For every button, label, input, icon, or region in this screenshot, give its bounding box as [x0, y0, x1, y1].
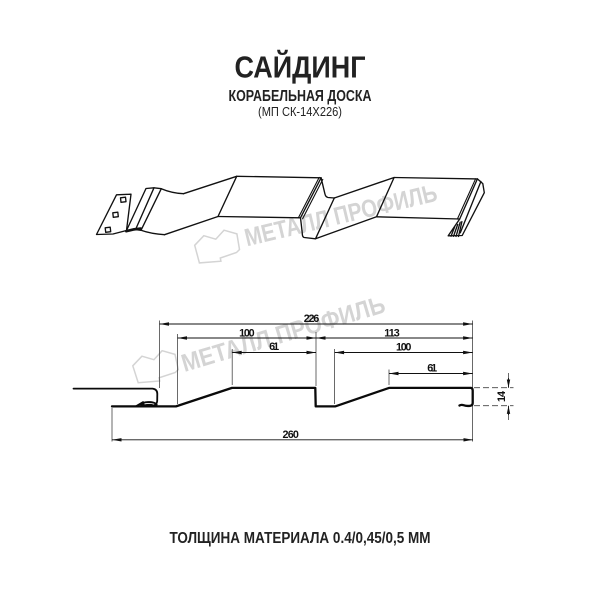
svg-text:260: 260 [282, 429, 299, 441]
svg-text:САЙДИНГ: САЙДИНГ [235, 48, 366, 84]
svg-text:КОРАБЕЛЬНАЯ ДОСКА: КОРАБЕЛЬНАЯ ДОСКА [229, 88, 372, 105]
svg-text:113: 113 [384, 328, 400, 340]
svg-text:226: 226 [304, 313, 320, 325]
svg-text:61: 61 [269, 341, 279, 353]
svg-text:(МП СК-14Х226): (МП СК-14Х226) [258, 104, 342, 119]
svg-text:100: 100 [396, 341, 412, 353]
svg-text:ТОЛЩИНА МАТЕРИАЛА 0.4/0,45/0,5: ТОЛЩИНА МАТЕРИАЛА 0.4/0,45/0,5 ММ [170, 530, 431, 547]
svg-text:61: 61 [427, 362, 437, 374]
svg-text:14: 14 [496, 391, 508, 402]
svg-text:100: 100 [239, 328, 255, 340]
